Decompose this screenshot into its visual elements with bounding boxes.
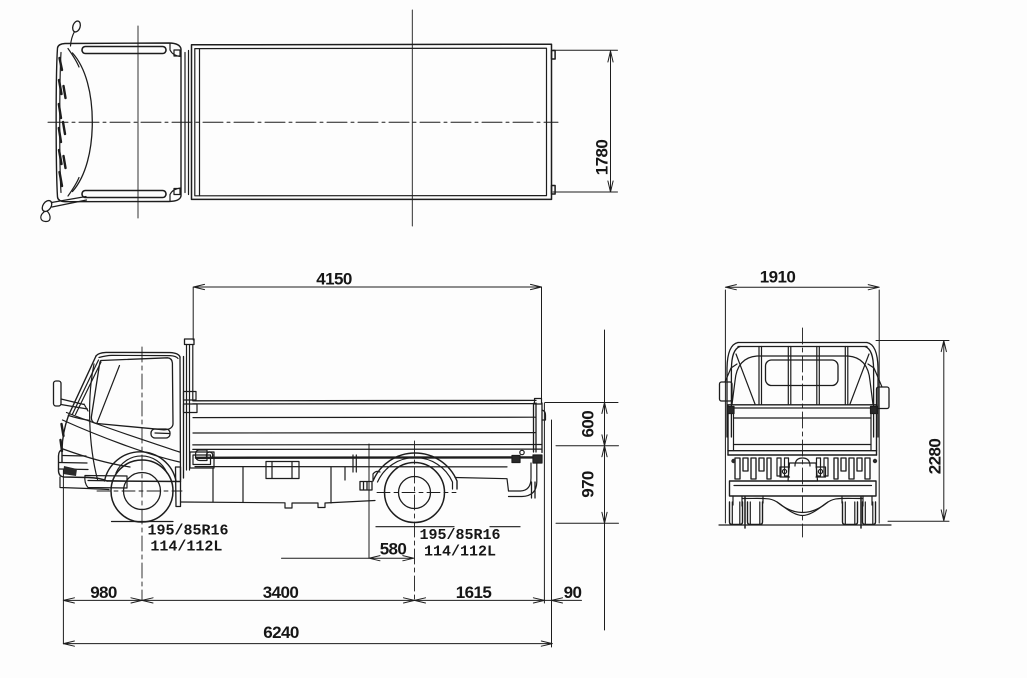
svg-text:2280: 2280 [926, 439, 945, 475]
svg-text:1780: 1780 [593, 140, 612, 176]
svg-text:970: 970 [579, 471, 598, 498]
svg-text:600: 600 [579, 411, 598, 438]
svg-text:1615: 1615 [456, 583, 492, 602]
svg-text:195/85R16: 195/85R16 [148, 523, 229, 540]
svg-text:195/85R16: 195/85R16 [420, 527, 501, 544]
svg-text:6240: 6240 [263, 623, 299, 642]
svg-text:580: 580 [380, 540, 407, 559]
svg-text:980: 980 [90, 583, 117, 602]
svg-text:114/112L: 114/112L [150, 539, 222, 556]
svg-text:3400: 3400 [263, 583, 299, 602]
svg-text:4150: 4150 [316, 269, 352, 288]
svg-text:1910: 1910 [760, 268, 796, 287]
svg-text:114/112L: 114/112L [424, 543, 496, 560]
svg-text:90: 90 [564, 583, 582, 602]
